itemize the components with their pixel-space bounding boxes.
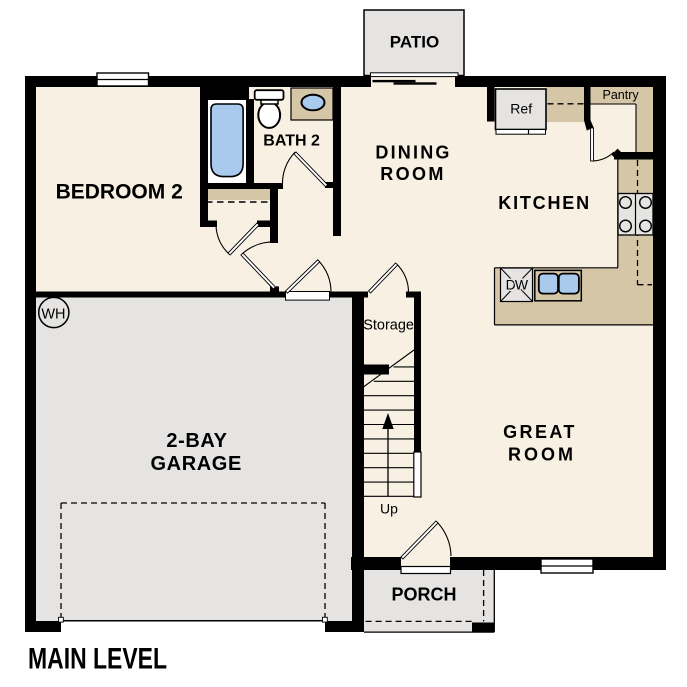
- svg-text:BATH 2: BATH 2: [263, 132, 320, 149]
- svg-text:DW: DW: [506, 276, 529, 292]
- svg-text:MAIN LEVEL: MAIN LEVEL: [28, 643, 167, 676]
- svg-text:GREAT: GREAT: [503, 422, 577, 442]
- svg-text:WH: WH: [41, 306, 65, 322]
- svg-text:Storage: Storage: [363, 318, 414, 334]
- svg-text:PORCH: PORCH: [391, 584, 456, 604]
- svg-text:Ref: Ref: [510, 100, 532, 116]
- svg-text:DINING: DINING: [375, 143, 451, 163]
- svg-text:GARAGE: GARAGE: [151, 453, 242, 475]
- svg-text:KITCHEN: KITCHEN: [498, 193, 591, 213]
- svg-text:Up: Up: [380, 501, 398, 517]
- svg-text:BEDROOM 2: BEDROOM 2: [56, 180, 183, 203]
- svg-text:ROOM: ROOM: [508, 445, 576, 465]
- svg-text:2-BAY: 2-BAY: [166, 430, 227, 452]
- svg-text:PATIO: PATIO: [390, 32, 439, 51]
- svg-text:Pantry: Pantry: [603, 88, 640, 102]
- svg-text:ROOM: ROOM: [380, 164, 446, 184]
